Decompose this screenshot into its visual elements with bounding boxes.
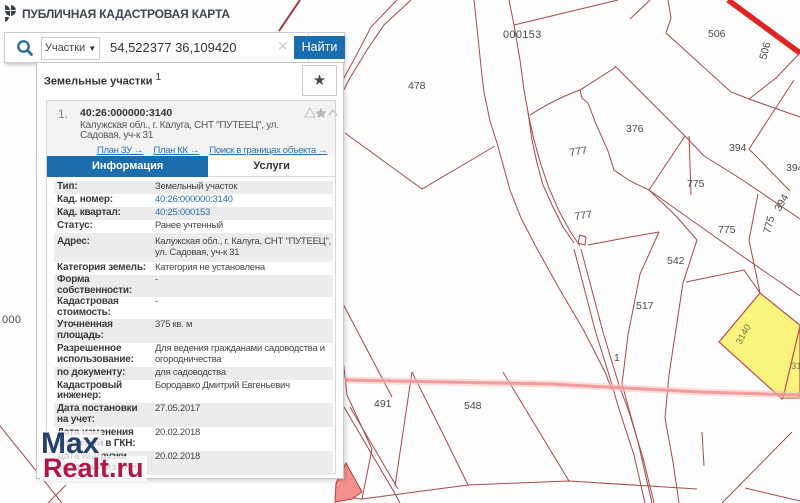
svg-text:506: 506 xyxy=(708,28,726,40)
svg-text:491: 491 xyxy=(374,398,392,410)
svg-text:394: 394 xyxy=(729,142,747,154)
svg-text:775: 775 xyxy=(718,224,736,236)
svg-text:1: 1 xyxy=(614,352,620,364)
svg-text:000: 000 xyxy=(2,314,21,326)
svg-text:777: 777 xyxy=(574,209,593,223)
svg-text:542: 542 xyxy=(667,255,685,267)
svg-text:000153: 000153 xyxy=(503,29,542,41)
svg-text:478: 478 xyxy=(408,80,426,92)
svg-text:777: 777 xyxy=(569,145,588,159)
svg-text:394: 394 xyxy=(786,162,800,174)
svg-text:517: 517 xyxy=(636,300,654,312)
svg-text:376: 376 xyxy=(626,123,644,135)
svg-text:775: 775 xyxy=(687,178,705,190)
svg-text:31: 31 xyxy=(791,361,800,372)
svg-text:548: 548 xyxy=(464,400,482,412)
